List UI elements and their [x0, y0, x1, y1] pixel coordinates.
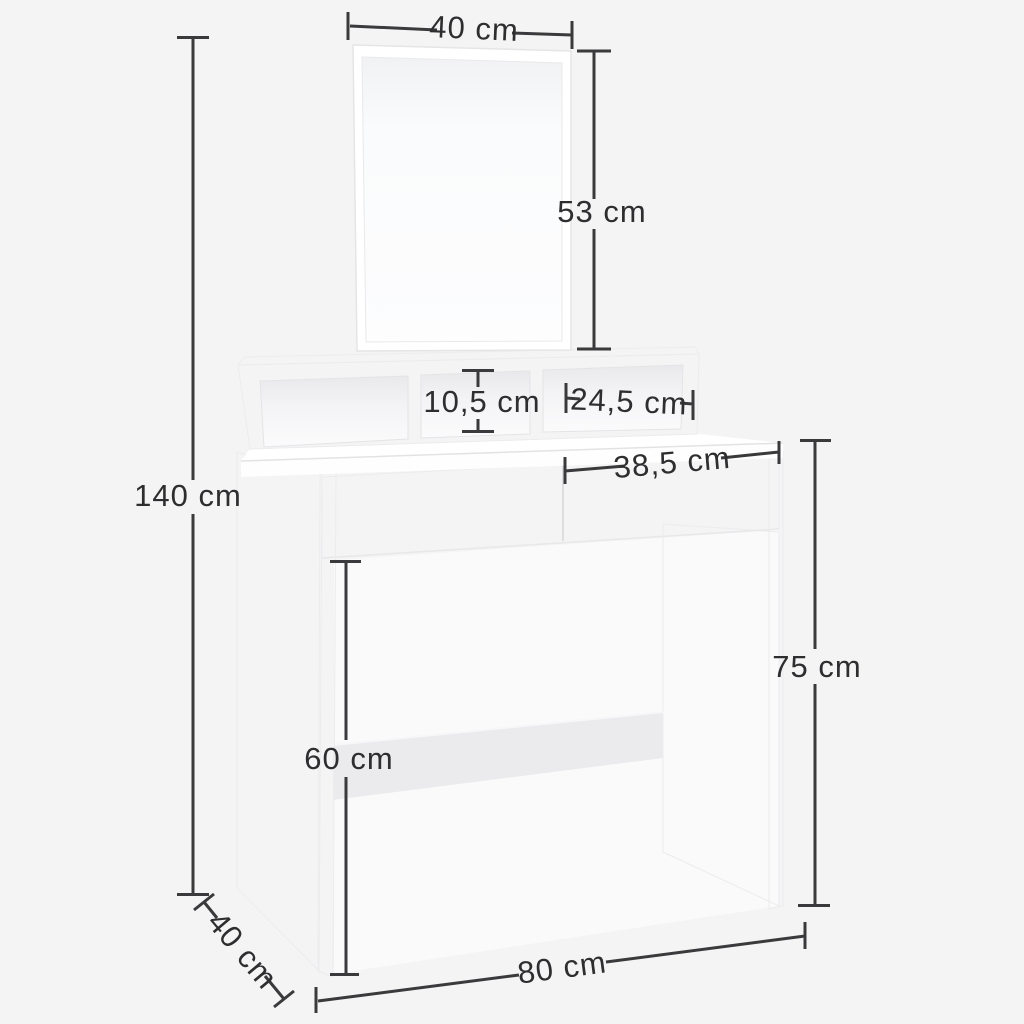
compartment-width-label: 24,5 cm: [570, 381, 689, 421]
mirror-width-label: 40 cm: [429, 9, 520, 48]
vanity-table-diagram: 40 cm 53 cm 140 cm 10,5 cm 24,5 cm 38,5 …: [0, 0, 1024, 1024]
tabletop-height-label: 75 cm: [772, 649, 861, 684]
dimension-diagram: 40 cm 53 cm 140 cm 10,5 cm 24,5 cm 38,5 …: [0, 0, 1024, 1024]
mirror-height-label: 53 cm: [557, 194, 646, 229]
leg-clearance-label: 60 cm: [304, 741, 393, 776]
compartment-width-dimension: 24,5 cm: [566, 381, 693, 421]
mirror-glass: [362, 57, 562, 342]
compartment-left: [260, 376, 408, 447]
compartment-height-label: 10,5 cm: [423, 384, 540, 419]
overall-height-label: 140 cm: [134, 478, 242, 513]
